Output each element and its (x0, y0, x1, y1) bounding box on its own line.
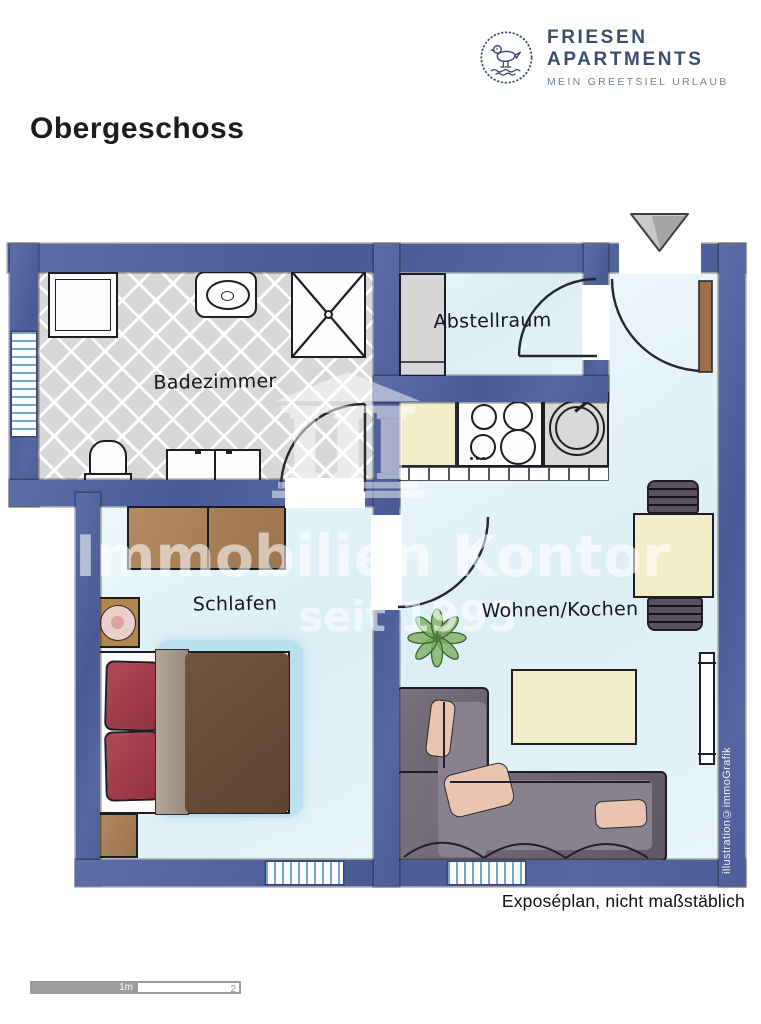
dining-chair-top (647, 480, 699, 514)
living-rug (511, 669, 637, 745)
illustration-credit: illustration©immoGrafik (721, 688, 733, 874)
washing-machine (48, 272, 118, 338)
bed-duvet (185, 653, 289, 813)
room-label-badezimmer: Badezimmer (120, 370, 310, 395)
room-label-schlafen: Schlafen (140, 592, 330, 617)
window-bottom-bedroom (266, 862, 343, 884)
window-bottom-living (448, 862, 525, 884)
bathroom-vanity (166, 449, 261, 483)
bed-pillow-2 (104, 730, 161, 801)
floor-plan: Badezimmer Abstellraum Schlafen Wohnen/K… (0, 0, 761, 1024)
kitchen-sink (543, 392, 609, 467)
room-label-wohnen-kochen: Wohnen/Kochen (460, 598, 660, 623)
nightstand (95, 813, 138, 858)
bed-blanket-fold (155, 649, 189, 815)
entrance-opening (619, 242, 701, 274)
toilet (89, 440, 127, 476)
storage-door-opening (582, 285, 610, 360)
bedside-stool (95, 597, 140, 648)
page: FRIESEN APARTMENTS MEIN GREETSIEL URLAUB… (0, 0, 761, 1024)
scale-bar: 1m 2 (30, 981, 241, 994)
plan-caption: Exposéplan, nicht maßstäblich (502, 891, 745, 912)
bathroom-sink (195, 271, 257, 318)
stove (457, 392, 543, 467)
shower (291, 271, 366, 358)
window-left (12, 332, 36, 436)
watermark-text: S Immobilien Kontor (14, 524, 670, 590)
wall-bottom (76, 860, 745, 886)
room-label-abstellraum: Abstellraum (400, 309, 585, 334)
scale-bar-segment-1: 1m (30, 981, 136, 994)
scale-bar-segment-2: 2 (136, 981, 241, 994)
radiator (699, 652, 715, 765)
bed-pillow-1 (104, 660, 161, 731)
sofa-pillow-3 (594, 799, 647, 830)
